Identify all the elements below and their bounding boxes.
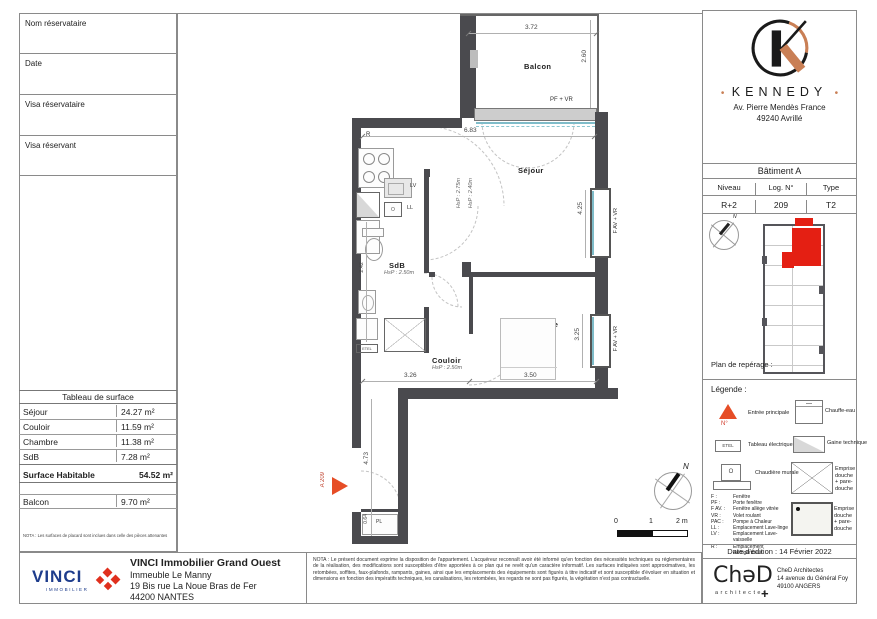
dim-line (362, 381, 597, 382)
door-jamb (469, 326, 473, 334)
room-label-sdb: SdB (389, 261, 405, 270)
unit-number-label: A 209 (320, 472, 326, 487)
compass-icon (654, 472, 692, 510)
compass-north-label: N (683, 462, 689, 471)
dim-chambre-width: 3.50 (524, 372, 537, 379)
wall-segment (402, 388, 618, 399)
room-label-couloir: Couloir (432, 356, 461, 365)
plan-sheet: { "form": {"rows": ["Nom réservataire", … (0, 0, 877, 619)
dim-line (590, 20, 591, 108)
dim-line (371, 399, 372, 536)
scale-bar-empty (652, 530, 688, 537)
room-label-sejour: Séjour (518, 166, 544, 175)
etel-box: ETEL (356, 344, 378, 353)
kitchen-sink (384, 178, 412, 198)
wall-segment (469, 277, 473, 333)
door-jamb (424, 169, 430, 177)
opening-fav-vr-label: F AV + VR (613, 208, 619, 233)
dim-couloir-width: 3.26 (404, 372, 417, 379)
dim-sejour-height: 4.25 (577, 202, 584, 215)
wall-segment (424, 177, 429, 273)
dim-line (366, 222, 367, 342)
shower (384, 318, 426, 352)
scale-bar-filled (617, 530, 652, 537)
dim-line (582, 314, 583, 368)
closet-label: PL (376, 519, 382, 525)
scale-0: 0 (614, 518, 618, 525)
room-label-balcon: Balcon (524, 62, 551, 71)
wall-segment (398, 388, 408, 536)
wall-segment (595, 112, 608, 190)
entrance-door-leaf (361, 509, 399, 512)
dim-line (362, 136, 595, 137)
dim-closet: 0.64 (363, 514, 369, 524)
scale-2m: 2 m (676, 518, 688, 525)
dim-balcon-width: 3.72 (525, 24, 538, 31)
glazing-line (592, 191, 594, 255)
scale-1: 1 (649, 518, 653, 525)
door-jamb (462, 262, 471, 272)
door-swing-arcs (0, 0, 877, 619)
window-band (474, 108, 597, 121)
glazing-line (592, 317, 594, 365)
entrance-arrow-icon (332, 477, 348, 495)
hsp-sejour-b: HsP : 2.40m (468, 178, 474, 208)
wall-fixture (470, 50, 478, 68)
gaine-technique (356, 192, 380, 218)
washer-label: LL (407, 205, 413, 211)
cabinet (356, 318, 378, 340)
dim-chambre-height: 3.25 (574, 328, 581, 341)
dim-line (468, 33, 597, 34)
dim-balcon-height: 2.60 (581, 50, 588, 63)
wall-segment (462, 272, 597, 277)
dim-entry-height: 4.73 (363, 452, 370, 465)
hsp-couloir: HsP : 2.50m (432, 365, 462, 371)
glazing-line (476, 122, 595, 124)
wall-segment (595, 258, 608, 314)
dim-sdb-height: 2.42 (359, 262, 365, 273)
hsp-sejour-a: HsP : 2.75m (456, 178, 462, 208)
wall-segment (352, 536, 408, 544)
washbasin (358, 290, 376, 314)
opening-pf-vr-label: PF + VR (550, 97, 573, 103)
dim-line (585, 190, 586, 258)
dishwasher-label: LV (410, 183, 416, 189)
dim-sejour-width: 6.83 (464, 127, 477, 134)
hsp-sdb: HsP : 2.50m (384, 270, 414, 276)
bed (500, 318, 556, 380)
glazing-line (476, 126, 595, 127)
opening-fav-vr-label: F AV + VR (613, 326, 619, 351)
wc-bowl (365, 238, 383, 261)
wall-segment (352, 118, 462, 128)
wall-segment (429, 272, 435, 277)
balcony-rail (460, 14, 599, 16)
fridge-label: R (366, 132, 370, 138)
boiler: O (384, 202, 402, 217)
floor-plan: Balcon 3.72 2.60 PF + VR F AV + VR F AV … (0, 0, 877, 619)
